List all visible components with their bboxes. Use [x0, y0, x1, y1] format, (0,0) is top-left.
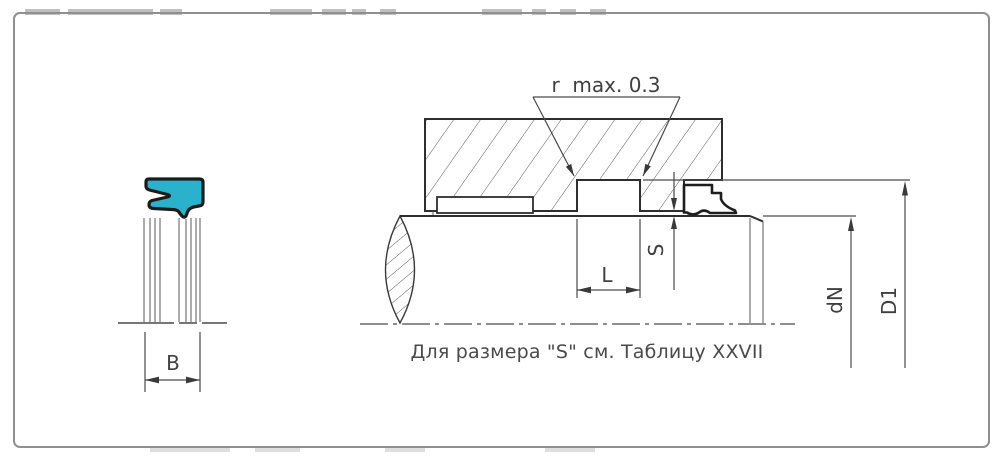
label-B: B: [166, 351, 180, 375]
arrow-left-icon: [145, 377, 159, 384]
shaft: [400, 216, 763, 323]
drawing-canvas: B r ma: [0, 0, 1000, 457]
seal-profile: [146, 179, 203, 217]
table-reference-note: Для размера "S" см. Таблицу XXVII: [387, 341, 787, 363]
arrow-right-icon: [626, 287, 640, 294]
seal-projection-lines: [144, 218, 200, 322]
label-D1: D1: [877, 287, 901, 315]
label-r-max: r max. 0.3: [551, 73, 660, 97]
arrow-left-icon: [577, 287, 591, 294]
shaft-break-section: [386, 216, 415, 323]
installed-seal-profile: [684, 185, 736, 215]
arrow-up-icon: [902, 181, 908, 196]
installation-view: r max. 0.3 L: [360, 73, 910, 368]
label-dN: dN: [823, 286, 847, 314]
arrow-up-icon: [848, 217, 854, 231]
guide-bushing: [437, 197, 533, 213]
arrow-up-icon: [671, 216, 677, 229]
label-S: S: [644, 244, 668, 257]
dimension-B: B: [145, 332, 200, 392]
seal-cross-section-view: B: [118, 179, 227, 392]
label-L: L: [601, 263, 613, 287]
arrow-right-icon: [186, 377, 200, 384]
technical-drawing-page: B r ma: [0, 0, 1000, 457]
dimension-L: L: [577, 219, 640, 298]
